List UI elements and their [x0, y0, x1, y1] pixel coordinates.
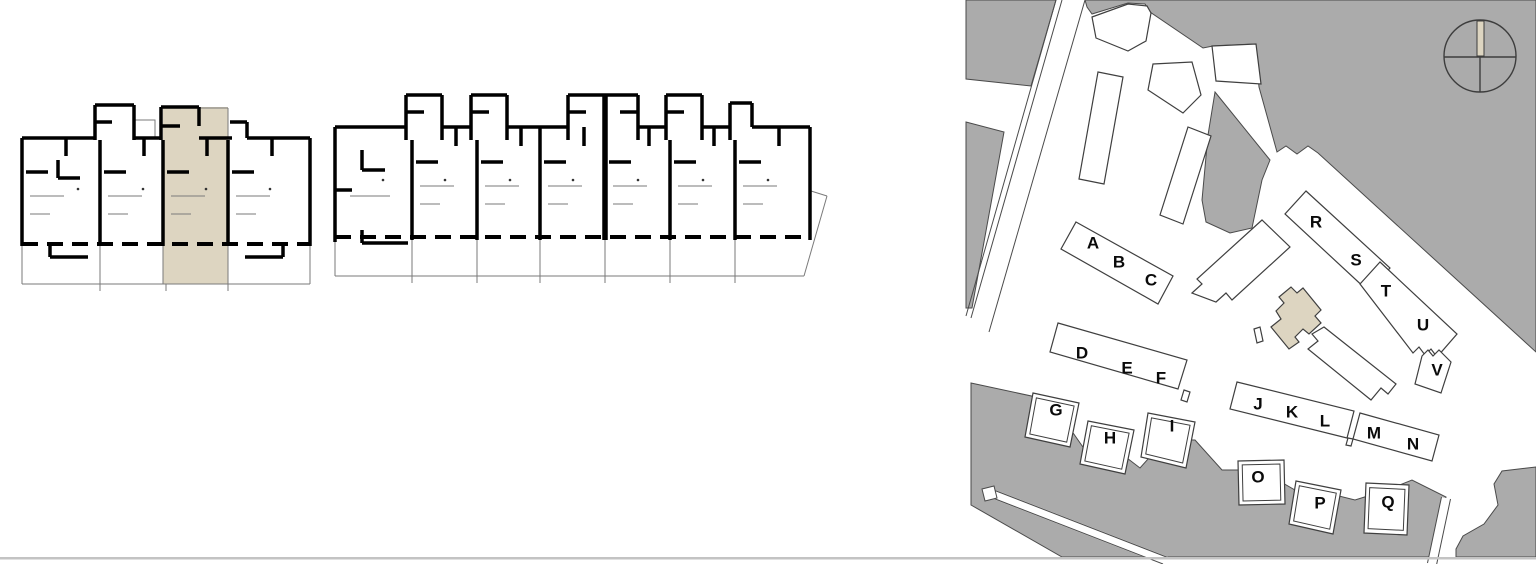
plot-label-V[interactable]: V [1431, 361, 1443, 380]
plot-label-D[interactable]: D [1076, 344, 1088, 363]
selected-unit-building[interactable] [1271, 287, 1321, 349]
plot-label-B[interactable]: B [1113, 253, 1125, 272]
plot-label-K[interactable]: K [1286, 403, 1299, 422]
terrain-center-pond [1202, 92, 1270, 233]
plot-label-C[interactable]: C [1145, 271, 1157, 290]
plot-label-N[interactable]: N [1407, 435, 1419, 454]
terrain-top-left-lower [966, 122, 1004, 308]
terrain-top-left-upper [966, 0, 1056, 86]
plot-label-T[interactable]: T [1381, 282, 1392, 301]
plot-label-E[interactable]: E [1121, 359, 1132, 378]
compass-north-needle [1477, 21, 1484, 56]
parcel-pentagon-mid [1148, 62, 1201, 113]
plot-label-R[interactable]: R [1310, 213, 1322, 232]
parcel-quad-top [1212, 44, 1261, 84]
site-map-selected-unit[interactable] [1271, 287, 1321, 349]
plot-row-def[interactable] [1050, 323, 1187, 389]
plot-label-I[interactable]: I [1170, 417, 1175, 436]
plot-label-J[interactable]: J [1253, 395, 1262, 414]
plot-label-L[interactable]: L [1320, 412, 1330, 431]
plot-label-O[interactable]: O [1251, 468, 1264, 487]
terrain-bottom-right [1456, 467, 1536, 557]
plot-row-tu[interactable] [1360, 262, 1457, 357]
floor-plan-building-2 [335, 95, 827, 283]
floor-plan-building-1 [22, 105, 310, 291]
bottom-divider [0, 557, 1536, 560]
plot-label-P[interactable]: P [1314, 494, 1325, 513]
plot-row-mn[interactable] [1353, 413, 1439, 461]
plot-label-M[interactable]: M [1367, 424, 1381, 443]
plot-label-S[interactable]: S [1350, 251, 1361, 270]
plot-label-G[interactable]: G [1049, 401, 1062, 420]
plot-label-U[interactable]: U [1417, 316, 1429, 335]
sliver-post-1 [1254, 327, 1263, 343]
building-center-north [1192, 220, 1290, 302]
plan-viewer-canvas: ABCDEFGHIJKLMNOPQRSTUV [0, 0, 1536, 564]
plot-label-A[interactable]: A [1087, 234, 1099, 253]
plot-label-H[interactable]: H [1104, 429, 1116, 448]
sliver-post-3 [1346, 438, 1353, 446]
plot-label-Q[interactable]: Q [1381, 493, 1394, 512]
building-center-south [1308, 327, 1396, 400]
plan-viewer: ABCDEFGHIJKLMNOPQRSTUV [0, 0, 1536, 564]
footpath-southwest-nub [982, 486, 997, 501]
sliver-post-2 [1181, 390, 1190, 402]
plot-label-F[interactable]: F [1156, 369, 1166, 388]
parcel-tall-rect-1 [1079, 72, 1123, 184]
